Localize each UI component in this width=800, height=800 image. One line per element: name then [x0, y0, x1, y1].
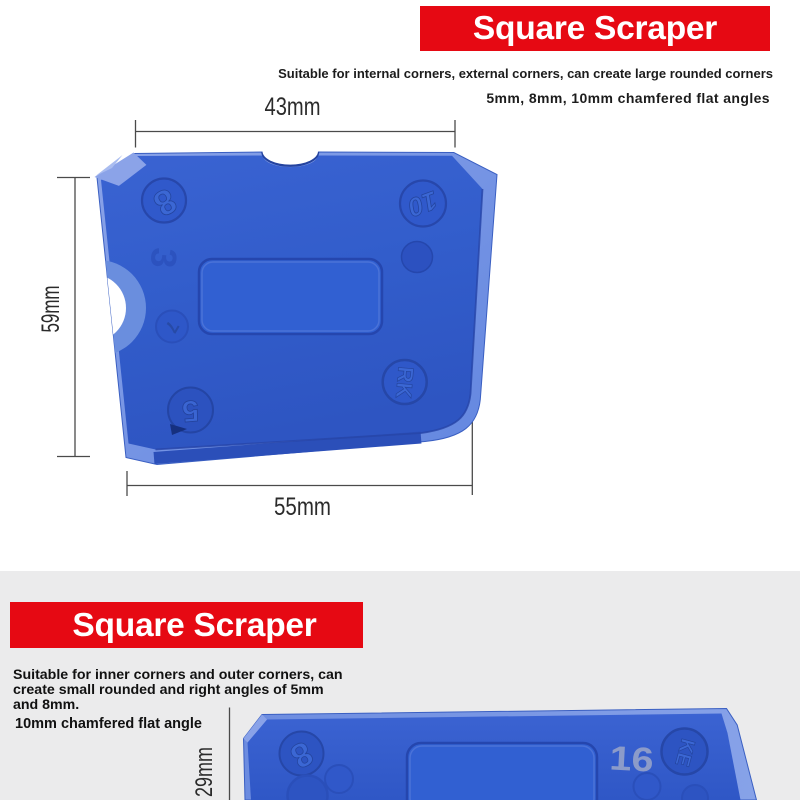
- svg-text:29mm: 29mm: [191, 747, 218, 797]
- svg-text:3: 3: [143, 246, 186, 270]
- svg-text:5: 5: [181, 393, 201, 427]
- svg-text:43mm: 43mm: [265, 93, 321, 121]
- svg-text:59mm: 59mm: [37, 286, 65, 333]
- svg-text:RK: RK: [391, 366, 419, 400]
- svg-text:55mm: 55mm: [274, 493, 331, 521]
